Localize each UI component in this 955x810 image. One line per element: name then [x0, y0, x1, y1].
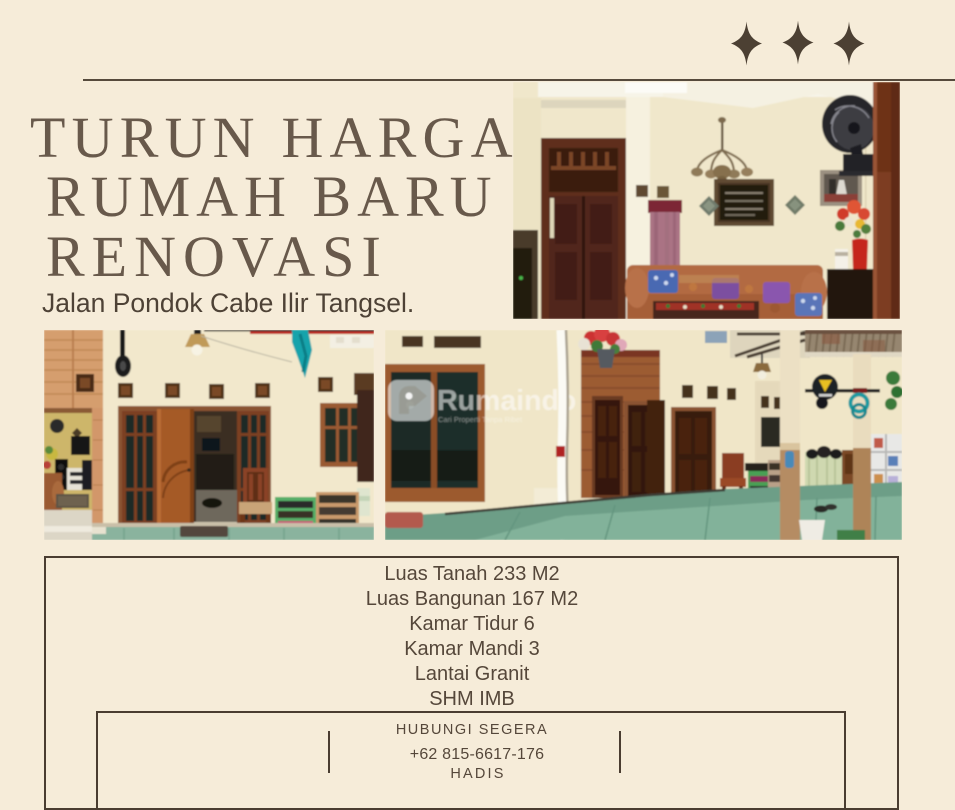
- svg-text:Cari Properti Tanpa Ribet: Cari Properti Tanpa Ribet: [438, 415, 523, 424]
- svg-text:Rumaindo: Rumaindo: [437, 385, 576, 417]
